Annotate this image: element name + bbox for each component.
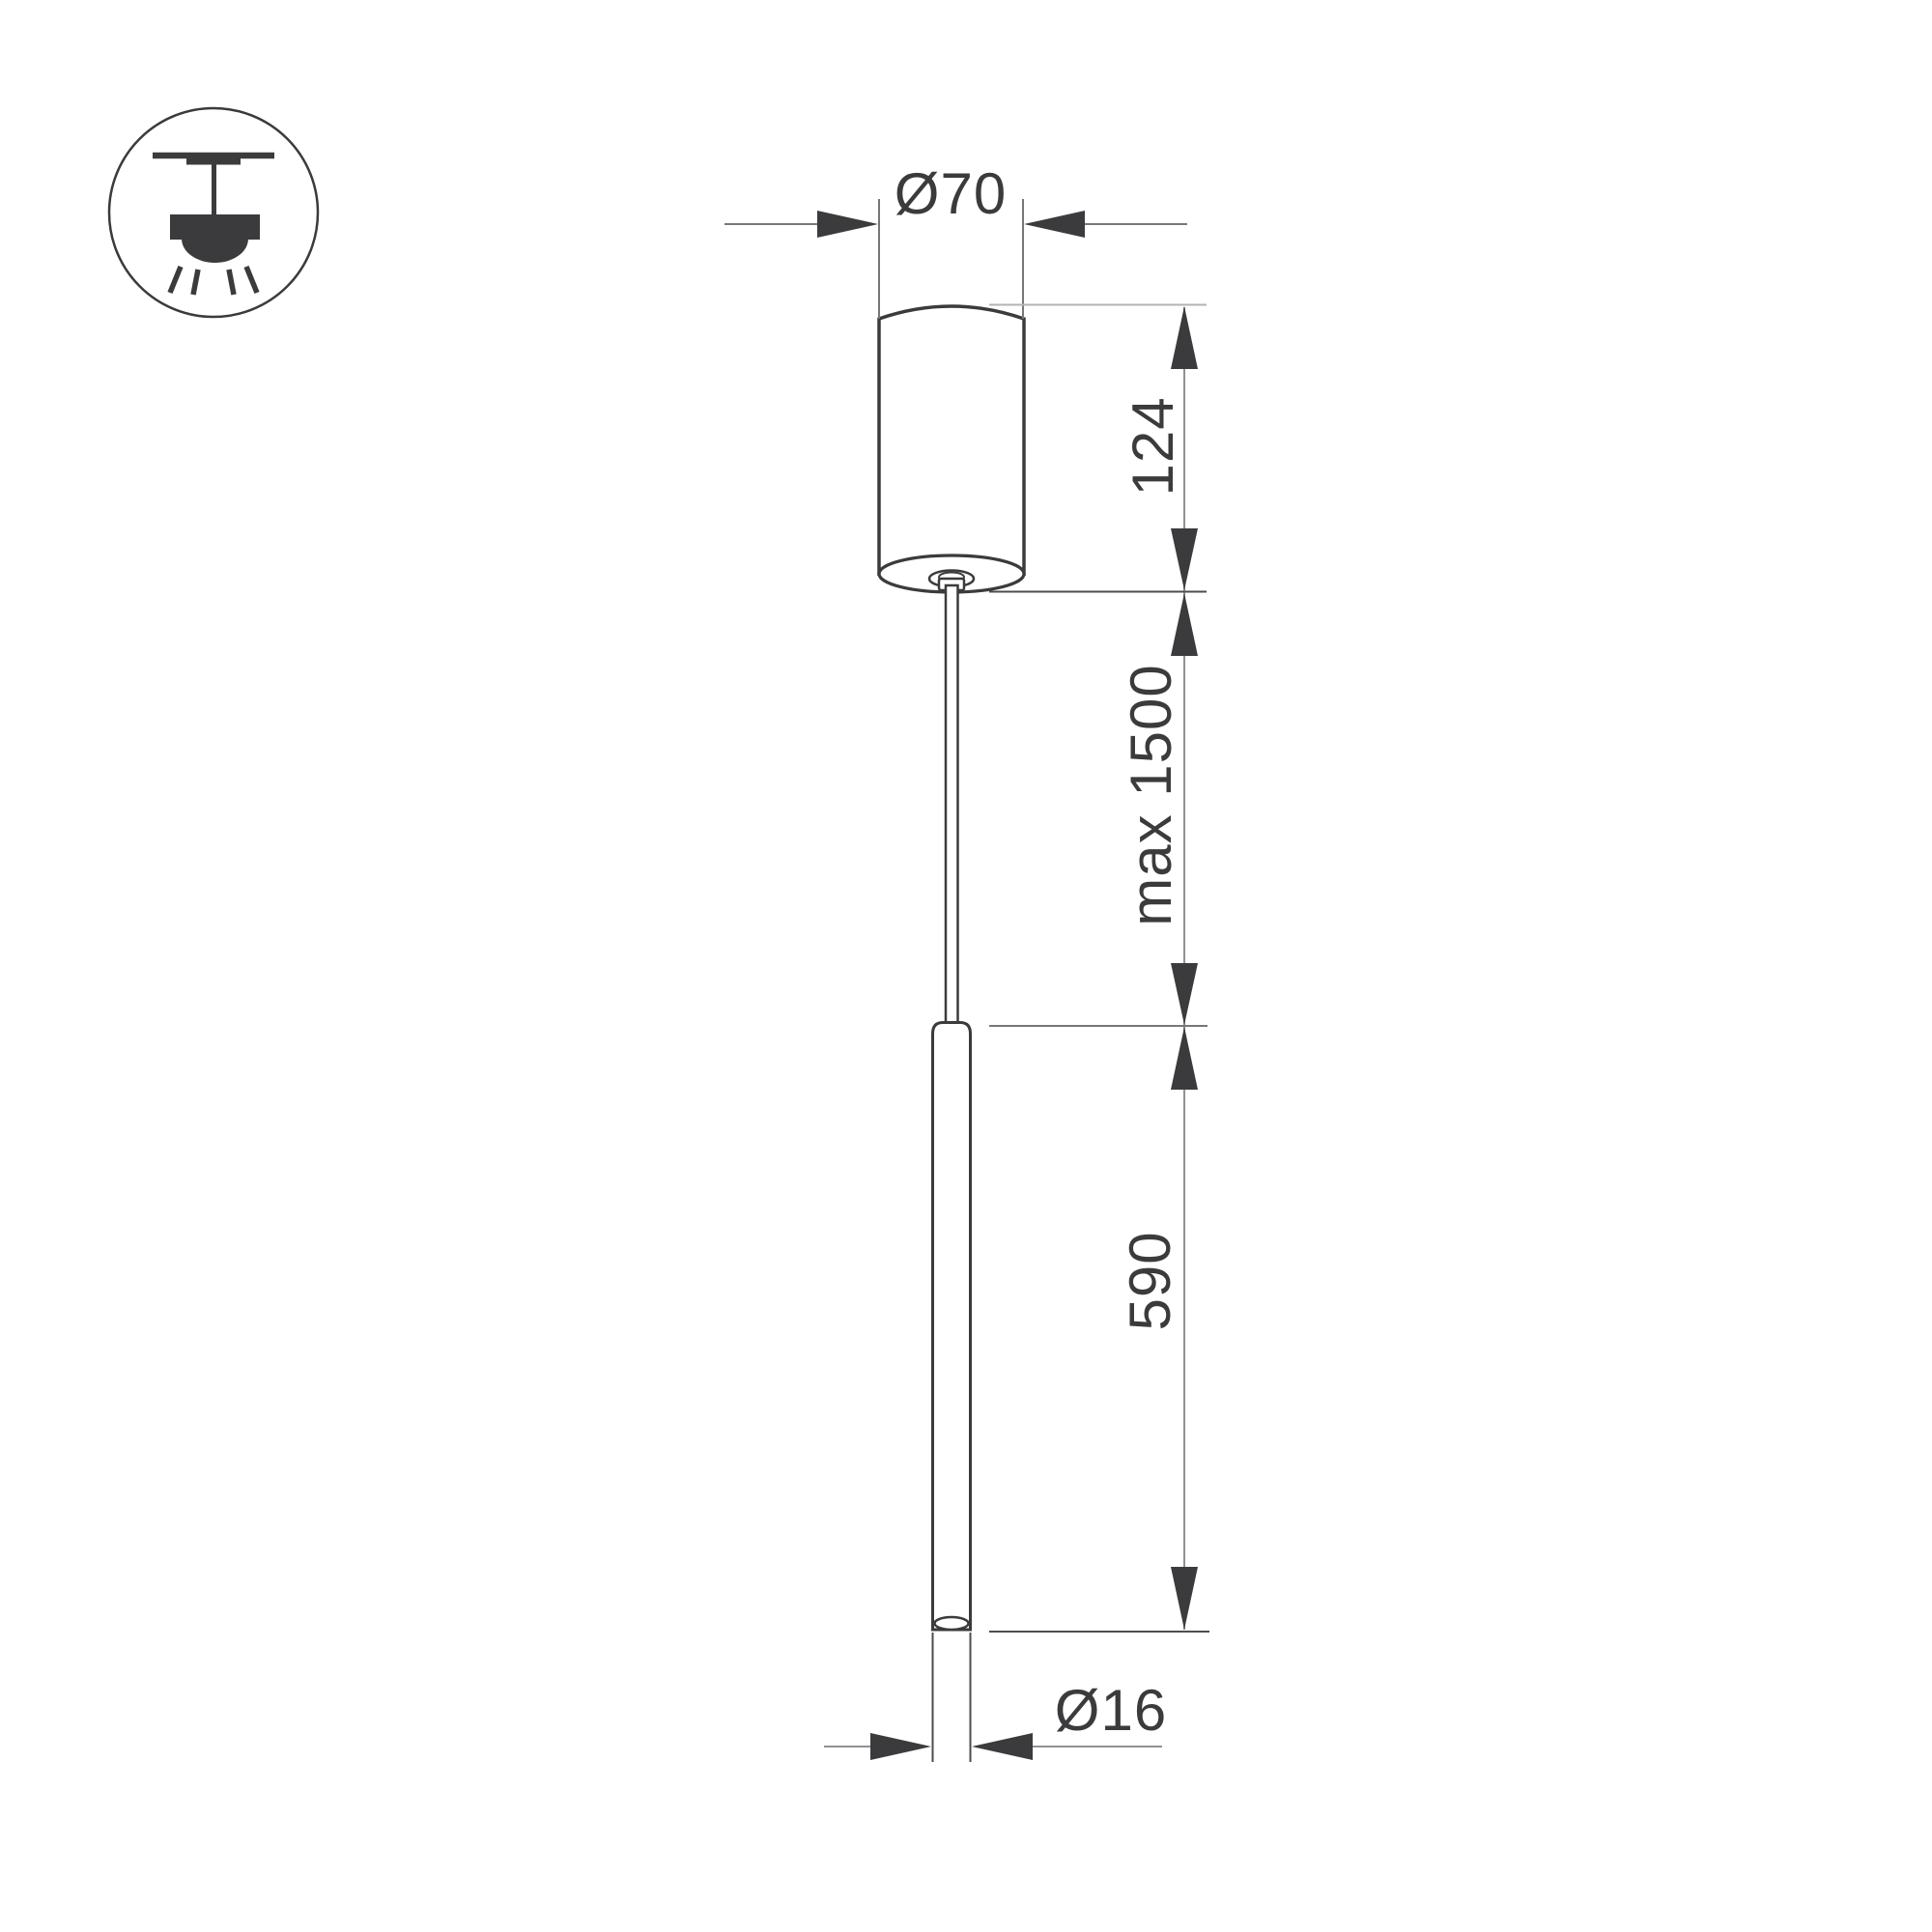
arrowhead-down-icon xyxy=(1171,528,1198,590)
arrowhead-left-icon xyxy=(972,1733,1033,1760)
arrowhead-up-icon xyxy=(1171,1027,1198,1090)
icon-lamp-body xyxy=(170,214,260,240)
arrowhead-down-icon xyxy=(1171,963,1198,1025)
dim-canopy-diameter: Ø70 xyxy=(724,161,1187,319)
arrowhead-down-icon xyxy=(1171,1567,1198,1630)
dim-tube-diameter: Ø16 xyxy=(824,1633,1167,1762)
arrowhead-right-icon xyxy=(870,1733,931,1760)
technical-drawing-page: Ø70 124 max 1500 590 Ø1 xyxy=(0,0,1932,1932)
canopy-height-label: 124 xyxy=(1121,396,1185,496)
tube-bottom-aperture xyxy=(935,1617,969,1630)
lamp-outline xyxy=(879,306,1024,1630)
canopy-body xyxy=(879,306,1024,576)
tube-length-label: 590 xyxy=(1118,1231,1182,1330)
pendant-lamp-dimension-drawing: Ø70 124 max 1500 590 Ø1 xyxy=(0,0,1932,1932)
arrowhead-right-icon xyxy=(817,211,878,238)
tube-diameter-label: Ø16 xyxy=(1055,1678,1167,1743)
arrowhead-up-icon xyxy=(1171,593,1198,656)
suspension-wire xyxy=(946,585,958,1026)
pendant-ceiling-mount-icon xyxy=(109,108,318,317)
canopy-diameter-label: Ø70 xyxy=(895,161,1007,226)
arrowhead-up-icon xyxy=(1171,306,1198,369)
arrowhead-left-icon xyxy=(1024,211,1085,238)
suspension-max-label: max 1500 xyxy=(1119,664,1183,926)
tube-body xyxy=(933,1023,971,1631)
